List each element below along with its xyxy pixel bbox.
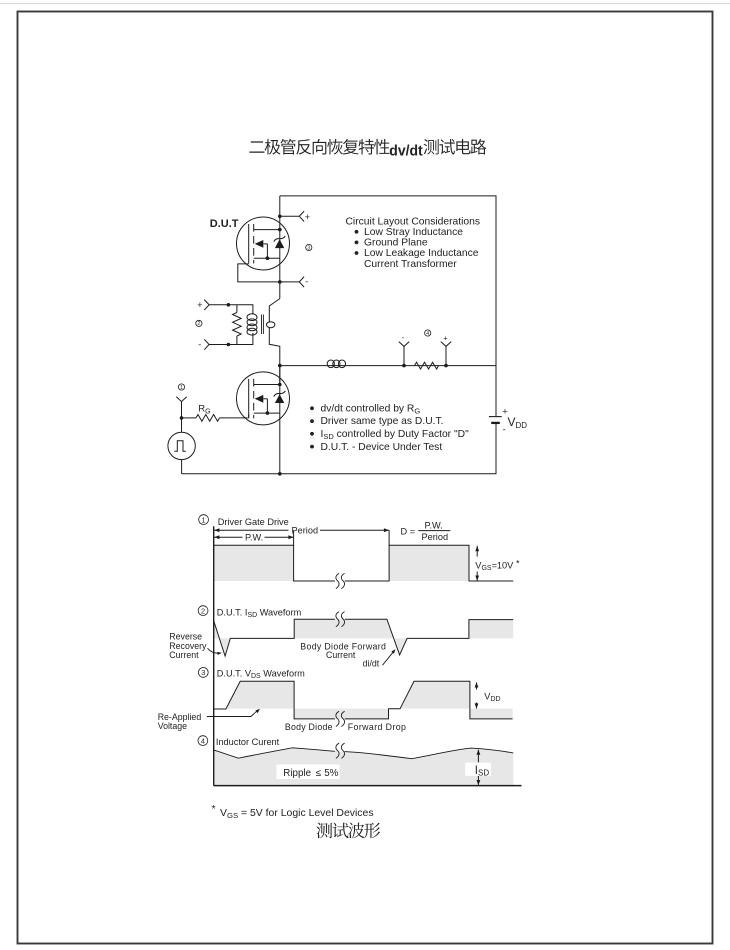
svg-text:*: * [516,559,520,569]
svg-text:3: 3 [307,245,310,251]
svg-text:Body Diode: Body Diode [285,722,333,732]
svg-text:Current: Current [326,650,356,660]
svg-text:4: 4 [201,736,205,745]
svg-text:Current: Current [169,650,199,660]
svg-text:-: - [198,339,201,349]
svg-text:VGS = 5V for Logic Level Devic: VGS = 5V for Logic Level Devices [220,808,374,820]
svg-text:3: 3 [201,668,205,677]
svg-text:-: - [305,277,308,287]
svg-text:Inductor Curent: Inductor Curent [216,737,280,747]
svg-text:Reverse: Reverse [169,631,202,641]
svg-text:+: + [305,212,310,222]
svg-text:di/dt: di/dt [363,659,380,669]
svg-text:Forward Drop: Forward Drop [348,722,406,732]
svg-text:D.U.T. - Device Under Test: D.U.T. - Device Under Test [321,442,443,453]
svg-text:+: + [197,300,202,310]
svg-text:2: 2 [201,606,205,615]
svg-text:Driver Gate Drive: Driver Gate Drive [218,517,289,527]
svg-text:1: 1 [202,515,206,524]
svg-text:D.U.T: D.U.T [210,218,239,230]
svg-text:Circuit Layout Considerations: Circuit Layout Considerations [346,216,481,227]
svg-text:Low Leakage Inductance: Low Leakage Inductance [364,248,479,259]
svg-text:ISD controlled by Duty Factor: ISD controlled by Duty Factor "D" [321,429,470,441]
svg-text:Voltage: Voltage [158,721,187,731]
svg-text:D =: D = [401,526,416,536]
svg-text:*: * [212,803,216,815]
svg-text:dv/dt: dv/dt [389,142,422,159]
svg-text:dv/dt controlled by RG: dv/dt controlled by RG [321,404,421,416]
svg-text:Driver same type as D.U.T.: Driver same type as D.U.T. [321,416,444,427]
svg-text:Low Stray Inductance: Low Stray Inductance [364,227,463,238]
svg-text:+: + [443,333,448,342]
svg-text:1: 1 [180,385,183,391]
svg-text:Ripple≤5%: Ripple≤5% [283,768,338,779]
svg-text:2: 2 [198,321,201,327]
svg-text:Period: Period [292,526,319,536]
svg-text:-: - [503,425,506,436]
svg-text:P.W.: P.W. [425,520,443,530]
svg-text:Current Transformer: Current Transformer [364,259,457,270]
svg-text:Ground Plane: Ground Plane [364,238,428,249]
svg-text:Period: Period [422,532,449,542]
svg-text:P.W.: P.W. [245,532,263,542]
svg-text:4: 4 [426,331,429,337]
